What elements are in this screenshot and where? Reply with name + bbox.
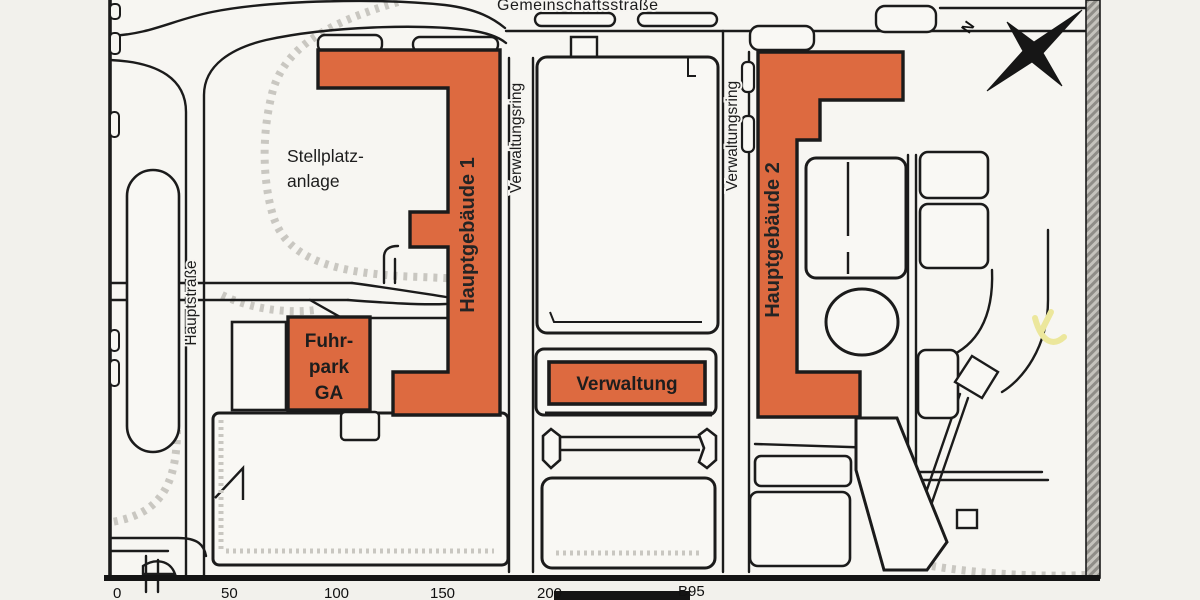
frame-tick bbox=[110, 33, 120, 54]
scale-tick-100: 100 bbox=[324, 585, 349, 600]
small-square bbox=[957, 510, 977, 528]
label-stellplatz-line2: anlage bbox=[287, 171, 340, 191]
tab-hg2-b bbox=[876, 6, 936, 32]
label-hauptstrasse: Hauptstraße bbox=[183, 260, 200, 345]
label-hauptgebaeude2: Hauptgebäude 2 bbox=[762, 162, 784, 318]
label-fuhrpark-line3: GA bbox=[315, 383, 344, 404]
tab-hg2-a bbox=[750, 26, 814, 50]
hg2-room-block bbox=[806, 158, 906, 278]
label-gemeinschaftsstrasse: Gemeinschaftsstraße bbox=[497, 0, 659, 14]
label-fuhrpark-line2: park bbox=[309, 357, 350, 378]
central-building-bump bbox=[571, 37, 597, 57]
island-1 bbox=[535, 13, 615, 26]
hg2-ellipse bbox=[826, 289, 898, 355]
tab-ring-a bbox=[742, 62, 754, 92]
right-room-a bbox=[920, 152, 988, 198]
south-room-a bbox=[755, 456, 851, 486]
scale-tick-50: 50 bbox=[221, 585, 238, 600]
parking-entrance-tab bbox=[341, 412, 379, 440]
right-room-c bbox=[918, 350, 958, 418]
scale-tick-150: 150 bbox=[430, 585, 455, 600]
loop-west bbox=[127, 170, 179, 452]
label-stellplatz-line1: Stellplatz- bbox=[287, 146, 364, 166]
label-b95: B95 bbox=[678, 583, 705, 600]
frame-right-band bbox=[1086, 0, 1100, 578]
site-plan-map: N Gemeinschaftsstraße Verwaltungsring Ve… bbox=[0, 0, 1200, 600]
scale-bar-segment bbox=[554, 591, 690, 600]
map-canvas: N Gemeinschaftsstraße Verwaltungsring Ve… bbox=[0, 0, 1200, 600]
frame-tick bbox=[110, 330, 119, 351]
frame-tick bbox=[110, 360, 119, 386]
label-verwaltungsring-right: Verwaltungsring bbox=[724, 81, 741, 191]
south-room-b bbox=[750, 492, 850, 566]
scale-tick-0: 0 bbox=[113, 585, 121, 600]
building-west-of-fuhrpark bbox=[232, 322, 286, 410]
tab-ring-b bbox=[742, 116, 754, 152]
central-building bbox=[537, 57, 718, 333]
island-2 bbox=[638, 13, 717, 26]
frame-tick bbox=[110, 112, 119, 137]
frame-tick bbox=[110, 4, 120, 19]
label-fuhrpark-line1: Fuhr- bbox=[305, 331, 354, 352]
label-hauptgebaeude1: Hauptgebäude 1 bbox=[457, 157, 479, 313]
right-room-b bbox=[920, 204, 988, 268]
label-verwaltungsring-left: Verwaltungsring bbox=[508, 83, 525, 193]
barbell-cap-left bbox=[543, 429, 560, 468]
label-verwaltung: Verwaltung bbox=[576, 374, 677, 395]
scale-tick-200: 200 bbox=[537, 585, 562, 600]
